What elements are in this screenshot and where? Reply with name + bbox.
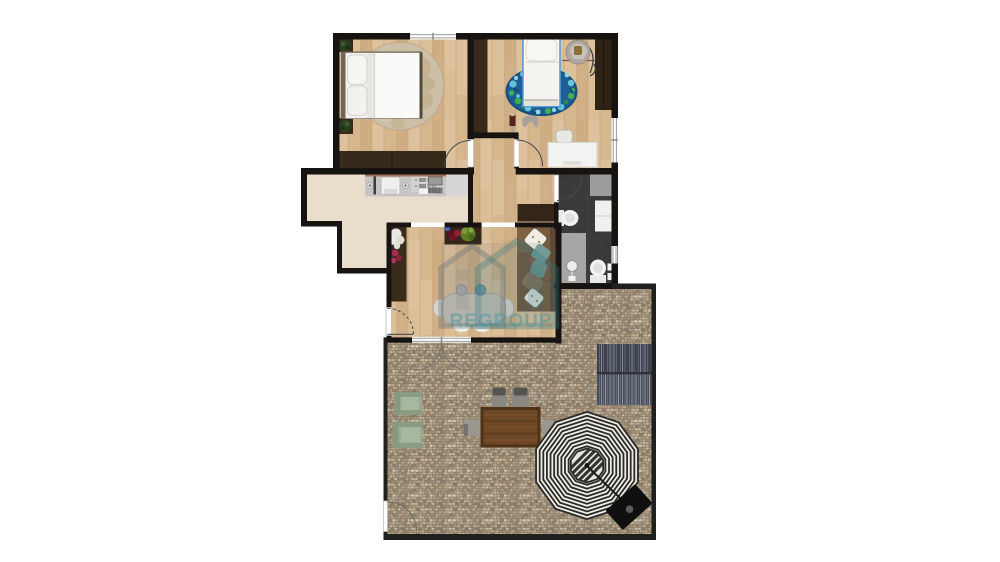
svg-text:REGROUP: REGROUP	[449, 311, 552, 332]
